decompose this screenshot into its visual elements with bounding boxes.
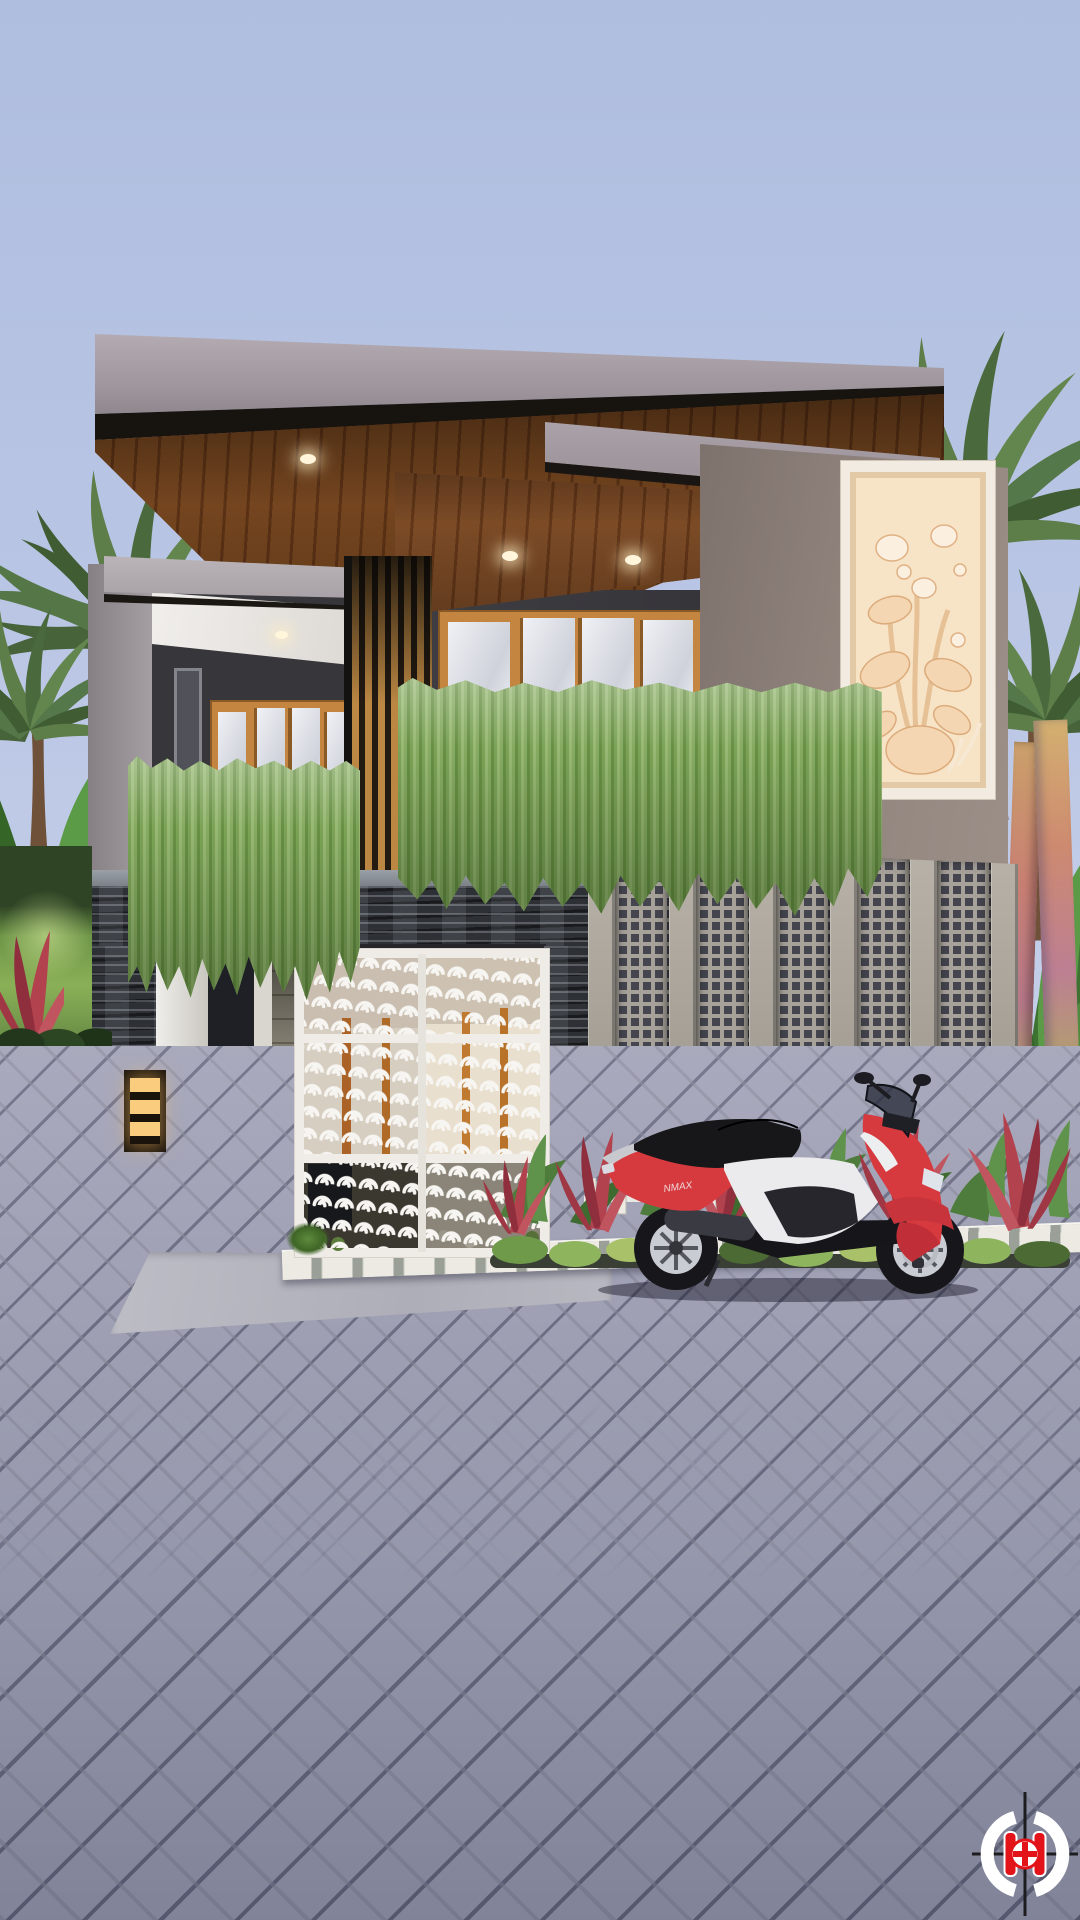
render-canvas: A 224 HRA <box>0 0 1080 1920</box>
hanging-planter-middle <box>398 678 882 916</box>
watermark-crosshair-logo-icon <box>972 1792 1078 1916</box>
downlight-balcony <box>275 631 288 639</box>
downlight-soffit <box>625 555 641 565</box>
wall-light <box>124 1070 166 1152</box>
downlight-soffit <box>300 454 316 464</box>
downlight-soffit <box>502 551 518 561</box>
hanging-planter-balcony <box>128 756 360 1000</box>
gate-left-panel[interactable] <box>304 958 420 1251</box>
paved-driveway-near <box>0 1400 1080 1920</box>
scooter: NMAX <box>568 1072 998 1304</box>
grass-tuft <box>286 1222 330 1256</box>
